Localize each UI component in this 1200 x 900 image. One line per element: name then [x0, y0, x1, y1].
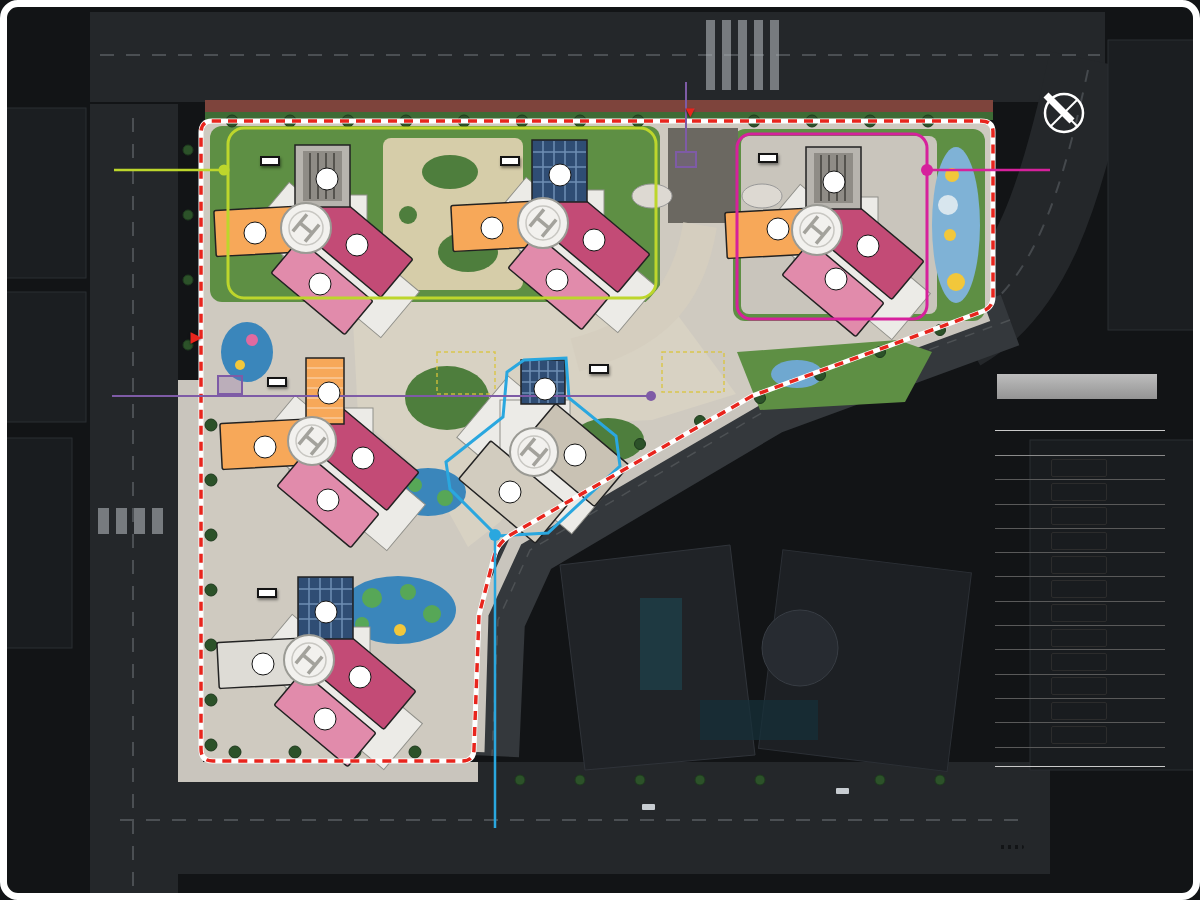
- legend-line-item: [997, 796, 1033, 817]
- legend-row: [995, 505, 1165, 529]
- unit-circle: [349, 666, 372, 689]
- unit-circle: [318, 382, 341, 405]
- type-color-swatch: [1051, 580, 1107, 598]
- unit-circle: [346, 234, 369, 257]
- side-entrance-arrow-icon: ▶: [190, 329, 202, 344]
- unit-circle: [314, 708, 337, 731]
- legend-row: [995, 529, 1165, 553]
- legend-row: [995, 553, 1165, 577]
- line-swatch: [997, 804, 1024, 808]
- unit-circle: [352, 447, 375, 470]
- legend-row: [995, 577, 1165, 601]
- line-swatch-dashed: [997, 845, 1024, 849]
- unit-circle: [825, 268, 848, 291]
- unit-circle: [254, 436, 277, 459]
- unit-circle: [857, 235, 880, 258]
- type-color-swatch: [1051, 459, 1107, 477]
- unit-circle: [244, 222, 267, 245]
- unit-circle: [309, 273, 332, 296]
- unit-circle: [315, 601, 338, 624]
- legend-line-key: [997, 775, 1033, 857]
- type-color-swatch: [1051, 653, 1107, 671]
- unit-circle: [317, 489, 340, 512]
- legend-row: [995, 699, 1165, 723]
- main-entrance-arrow-icon: ▼: [683, 104, 698, 119]
- unit-circle: [316, 168, 339, 191]
- legend-divider: [995, 766, 1165, 767]
- building-label-305: [260, 156, 280, 166]
- building-label-303: [257, 588, 277, 598]
- unit-circle: [546, 269, 569, 292]
- legend-line-item: [997, 816, 1033, 837]
- type-color-swatch: [1051, 556, 1107, 574]
- type-color-swatch: [1051, 702, 1107, 720]
- building-label-304: [267, 377, 287, 387]
- unit-circle: [534, 378, 557, 401]
- legend-row: [995, 723, 1165, 747]
- legend-line-item: [997, 775, 1033, 796]
- unit-circle: [823, 171, 846, 194]
- building-label-306: [500, 156, 520, 166]
- unit-circle: [481, 217, 504, 240]
- unit-circle: [499, 481, 522, 504]
- building-label-301: [758, 153, 778, 163]
- unit-circle: [583, 229, 606, 252]
- type-color-swatch: [1051, 604, 1107, 622]
- type-color-swatch: [1051, 507, 1107, 525]
- legend-row: [995, 650, 1165, 674]
- type-color-swatch: [1051, 629, 1107, 647]
- building-label-302: [589, 364, 609, 374]
- legend-row: [995, 602, 1165, 626]
- unit-circle: [252, 653, 275, 676]
- line-swatch: [997, 824, 1024, 828]
- line-swatch: [997, 783, 1024, 787]
- legend-table: [995, 455, 1165, 748]
- legend-row: [995, 675, 1165, 699]
- type-color-swatch: [1051, 726, 1107, 744]
- site-plan-page: ▼ ▶: [0, 0, 1200, 900]
- legend-row: [995, 456, 1165, 480]
- type-color-swatch: [1051, 677, 1107, 695]
- site-plan-svg: [0, 0, 1200, 900]
- legend-row: [995, 626, 1165, 650]
- legend-row: [995, 480, 1165, 504]
- unit-circle: [564, 444, 587, 467]
- unit-circle: [767, 218, 790, 241]
- legend-line-item: [997, 837, 1033, 858]
- legend-divider: [995, 430, 1165, 431]
- type-color-swatch: [1051, 483, 1107, 501]
- unit-circle: [549, 164, 572, 187]
- legend-title: [997, 374, 1157, 399]
- type-color-swatch: [1051, 532, 1107, 550]
